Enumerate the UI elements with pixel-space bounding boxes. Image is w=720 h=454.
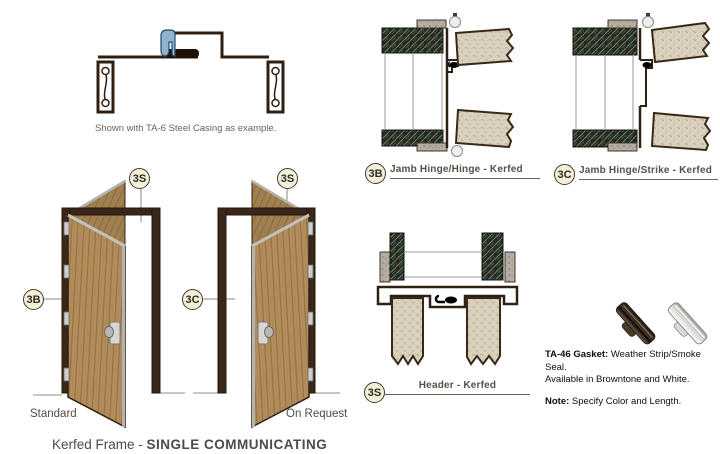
casing-right <box>505 252 515 282</box>
casing-top <box>417 20 446 28</box>
badge-3s-on-request: 3S <box>277 168 298 189</box>
frame-jamb-left <box>218 208 226 393</box>
stud-lines <box>576 55 633 130</box>
section-jamb-hinge-strike-drawing <box>556 6 720 158</box>
wall-top <box>573 28 637 55</box>
frame-profile-drawing <box>85 20 295 120</box>
casing-left <box>380 252 390 282</box>
front-door-leaf <box>252 215 309 427</box>
casing-bottom <box>417 143 447 151</box>
frame-jamb-right <box>152 208 160 393</box>
door-top-left <box>392 298 423 364</box>
gasket-name: TA-46 Gasket: Weather Strip/Smoke Seal. <box>545 349 701 373</box>
casing-top <box>608 20 637 28</box>
badge-3s-standard: 3S <box>129 168 150 189</box>
frame-profile-outline <box>98 33 283 112</box>
door-top-right <box>467 298 500 364</box>
page-title-bold: SINGLE COMMUNICATING <box>147 437 328 452</box>
door-leaf-top <box>456 29 513 65</box>
section-header-drawing <box>375 225 525 380</box>
frame-head <box>62 208 160 215</box>
badge-3c-section: 3C <box>554 164 575 185</box>
label-jamb-hinge-strike: Jamb Hinge/Strike - Kerfed <box>579 165 718 180</box>
wall-top <box>382 28 443 53</box>
gasket-availability: Available in Browntone and White. <box>545 374 690 385</box>
gasket-browntone <box>610 301 656 348</box>
badge-3b-section: 3B <box>365 163 386 184</box>
wall-left <box>390 233 404 280</box>
kerf-gasket <box>643 62 652 68</box>
label-jamb-hinge-hinge: Jamb Hinge/Hinge - Kerfed <box>390 164 540 179</box>
badge-3s-header: 3S <box>364 382 385 403</box>
door-leaf-top <box>652 23 709 62</box>
standard-label: Standard <box>30 408 77 420</box>
door-leaf-bottom <box>652 113 710 150</box>
gasket-images <box>610 296 715 348</box>
gasket-note: Note: Specify Color and Length. <box>545 396 720 409</box>
section-jamb-hinge-hinge-drawing <box>368 6 540 158</box>
kerf-slot-gasket <box>166 49 199 58</box>
frame-head <box>218 208 315 215</box>
door-leaf-bottom <box>456 110 513 147</box>
stud-lines <box>385 53 442 130</box>
casing-bottom <box>608 143 637 151</box>
label-header: Header - Kerfed <box>385 380 530 395</box>
gasket-hook <box>436 296 445 302</box>
hinge-barrel <box>643 13 654 28</box>
anchor-pockets <box>102 68 279 107</box>
badge-3c-door: 3C <box>182 289 203 310</box>
standard-door-assembly <box>62 181 160 427</box>
front-door-leaf <box>68 215 125 427</box>
catalog-page: Shown with TA-6 Steel Casing as example. <box>0 0 720 454</box>
on-request-door-assembly <box>218 181 315 427</box>
page-title: Kerfed Frame - SINGLE COMMUNICATING <box>52 437 327 452</box>
kerf-gasket <box>445 297 457 304</box>
on-request-label: On Request <box>286 408 347 420</box>
profile-caption: Shown with TA-6 Steel Casing as example. <box>95 123 310 134</box>
gasket-description: TA-46 Gasket: Weather Strip/Smoke Seal. … <box>545 349 720 408</box>
badge-3b-door: 3B <box>23 289 44 310</box>
stud-lines <box>404 252 482 277</box>
page-title-regular: Kerfed Frame - <box>52 437 147 452</box>
wall-right <box>482 233 503 280</box>
gasket-white <box>662 301 708 348</box>
ta6-steel-casing-clip <box>161 30 175 56</box>
